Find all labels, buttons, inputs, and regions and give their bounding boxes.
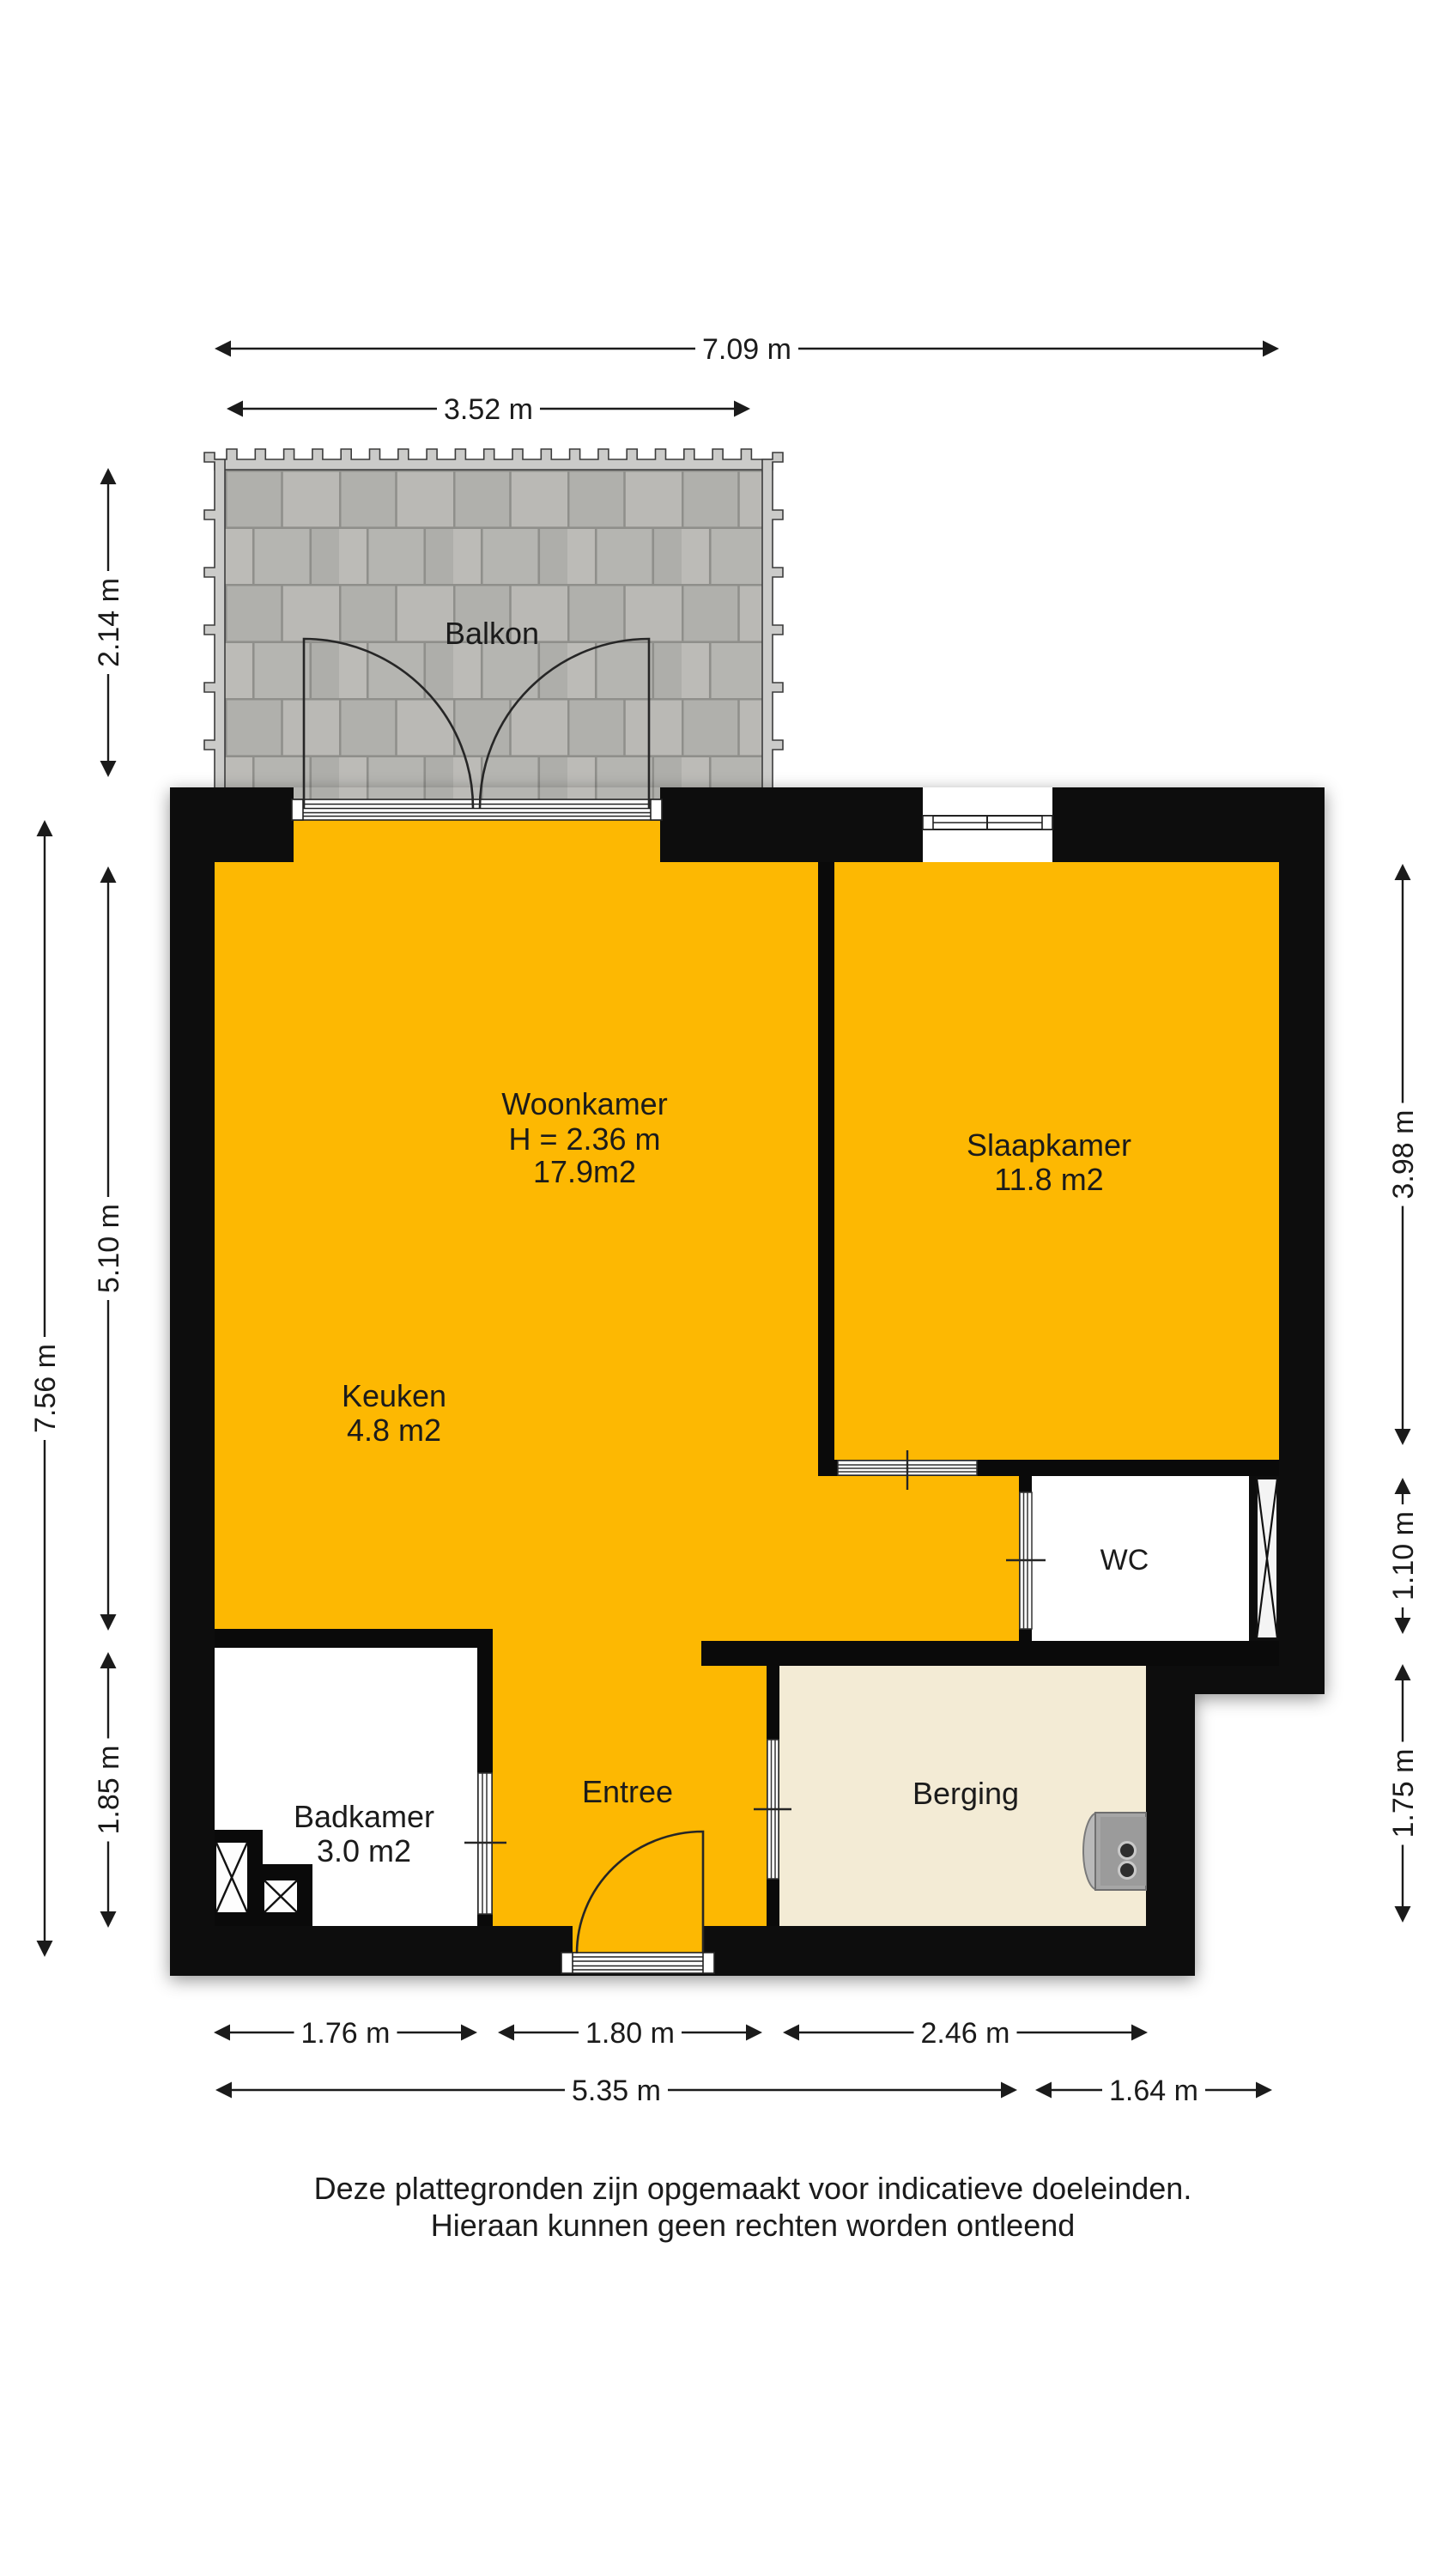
svg-text:H = 2.36 m: H = 2.36 m <box>508 1121 660 1157</box>
svg-text:Keuken: Keuken <box>342 1378 446 1413</box>
svg-text:Entree: Entree <box>582 1774 673 1809</box>
svg-text:3.52 m: 3.52 m <box>444 393 533 426</box>
svg-text:Balkon: Balkon <box>445 616 539 651</box>
svg-text:5.35 m: 5.35 m <box>572 2075 661 2107</box>
svg-text:Berging: Berging <box>912 1776 1019 1811</box>
svg-text:1.64 m: 1.64 m <box>1109 2075 1198 2107</box>
svg-text:1.10 m: 1.10 m <box>1387 1511 1420 1601</box>
svg-text:7.09 m: 7.09 m <box>702 333 791 366</box>
svg-text:5.10 m: 5.10 m <box>93 1204 125 1293</box>
svg-text:2.46 m: 2.46 m <box>921 2017 1010 2050</box>
svg-text:Deze plattegronden zijn opgema: Deze plattegronden zijn opgemaakt voor i… <box>314 2171 1192 2206</box>
svg-text:17.9m2: 17.9m2 <box>533 1154 636 1189</box>
svg-text:1.85 m: 1.85 m <box>93 1746 125 1835</box>
svg-text:3.98 m: 3.98 m <box>1387 1110 1420 1200</box>
svg-text:1.75 m: 1.75 m <box>1387 1749 1420 1838</box>
svg-text:1.80 m: 1.80 m <box>585 2017 675 2050</box>
svg-text:WC: WC <box>1100 1544 1149 1577</box>
svg-text:1.76 m: 1.76 m <box>301 2017 391 2050</box>
svg-text:Woonkamer: Woonkamer <box>501 1086 667 1121</box>
svg-text:Hieraan kunnen geen rechten wo: Hieraan kunnen geen rechten worden ontle… <box>431 2208 1076 2243</box>
svg-text:3.0 m2: 3.0 m2 <box>317 1833 411 1868</box>
svg-text:11.8 m2: 11.8 m2 <box>994 1162 1103 1197</box>
svg-text:2.14 m: 2.14 m <box>93 578 125 667</box>
svg-text:4.8 m2: 4.8 m2 <box>347 1413 441 1448</box>
svg-text:Slaapkamer: Slaapkamer <box>967 1127 1131 1163</box>
svg-text:7.56 m: 7.56 m <box>29 1344 62 1433</box>
svg-text:Badkamer: Badkamer <box>294 1799 434 1834</box>
